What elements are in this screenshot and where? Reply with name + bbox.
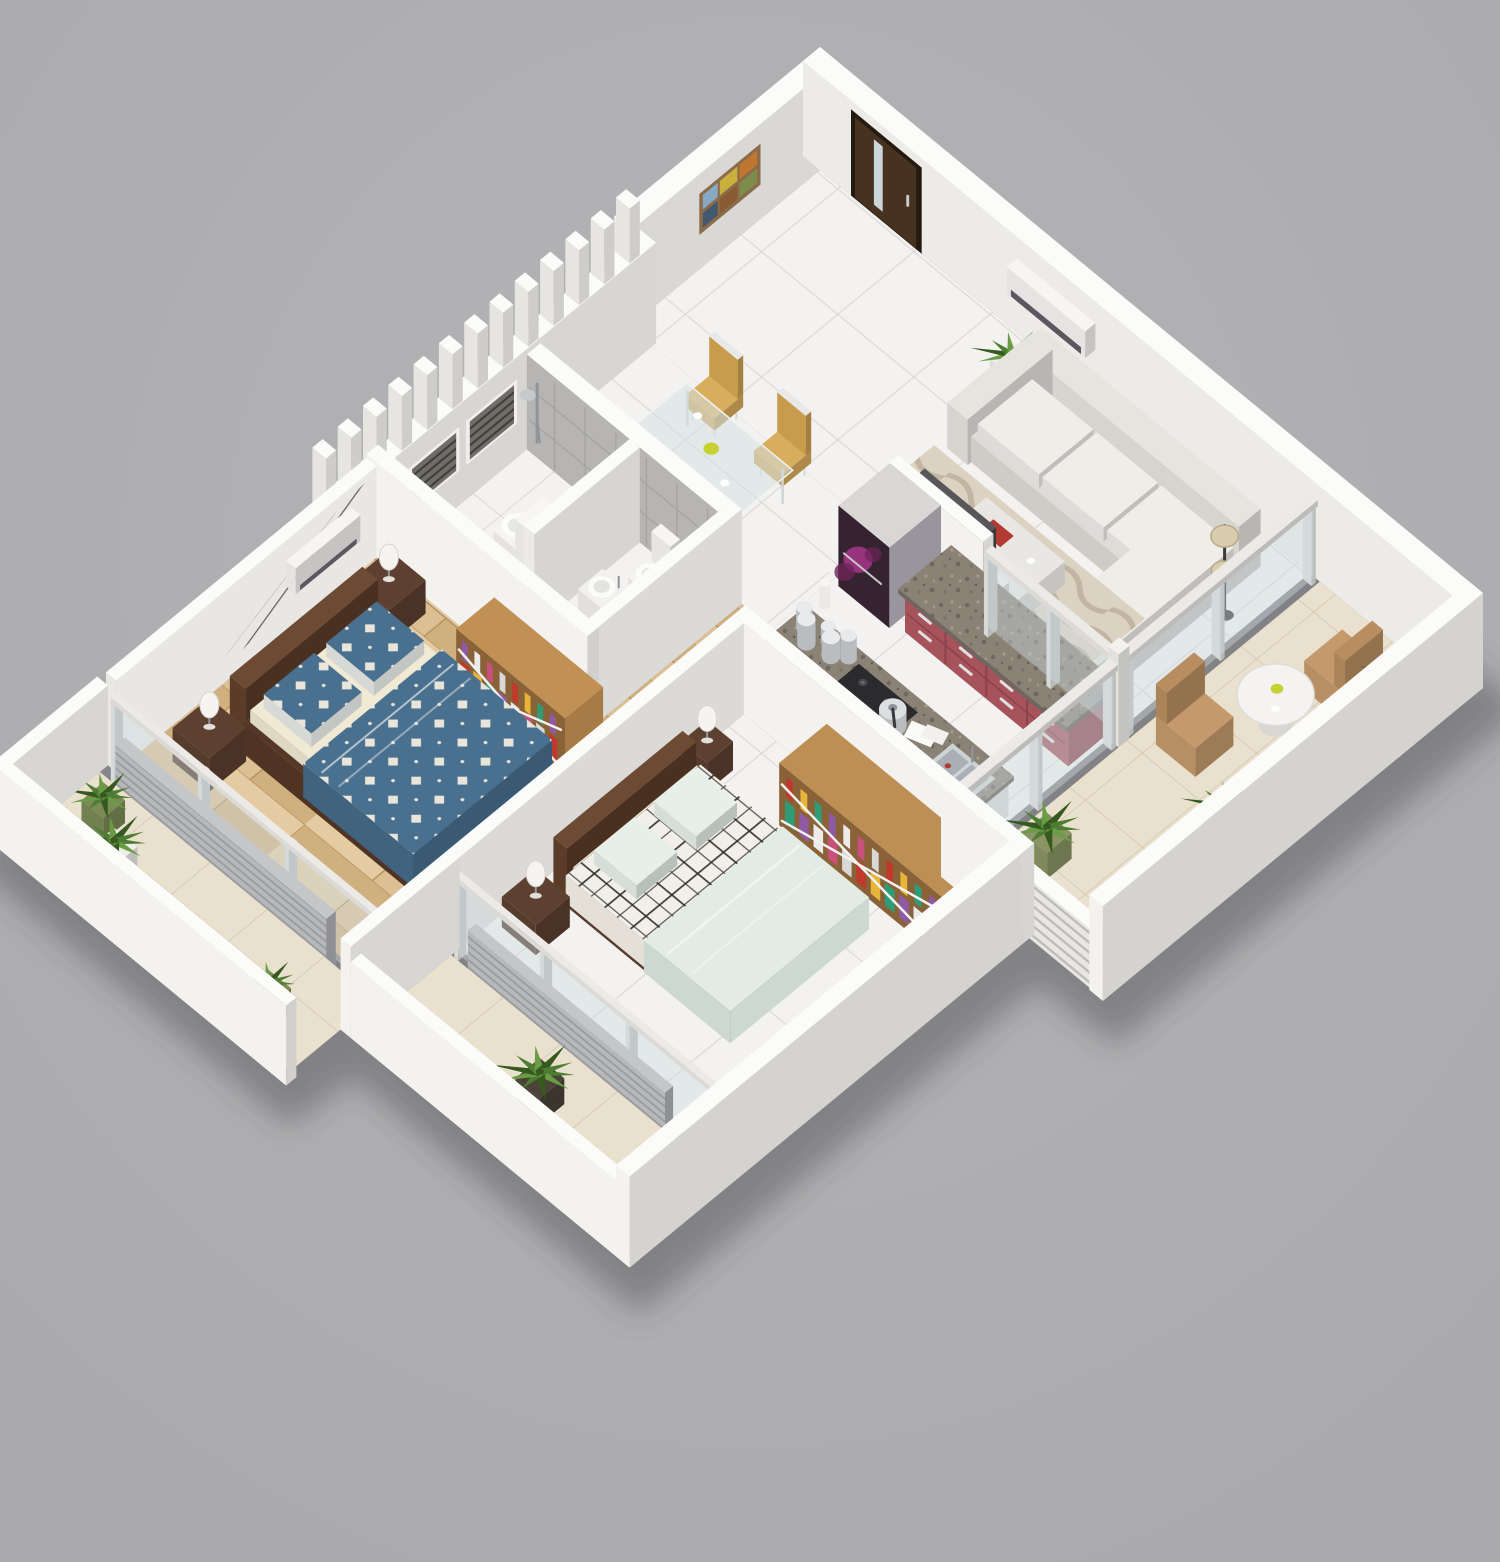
isometric-scene [0, 0, 1500, 1562]
floor-plan-render [0, 0, 1500, 1562]
